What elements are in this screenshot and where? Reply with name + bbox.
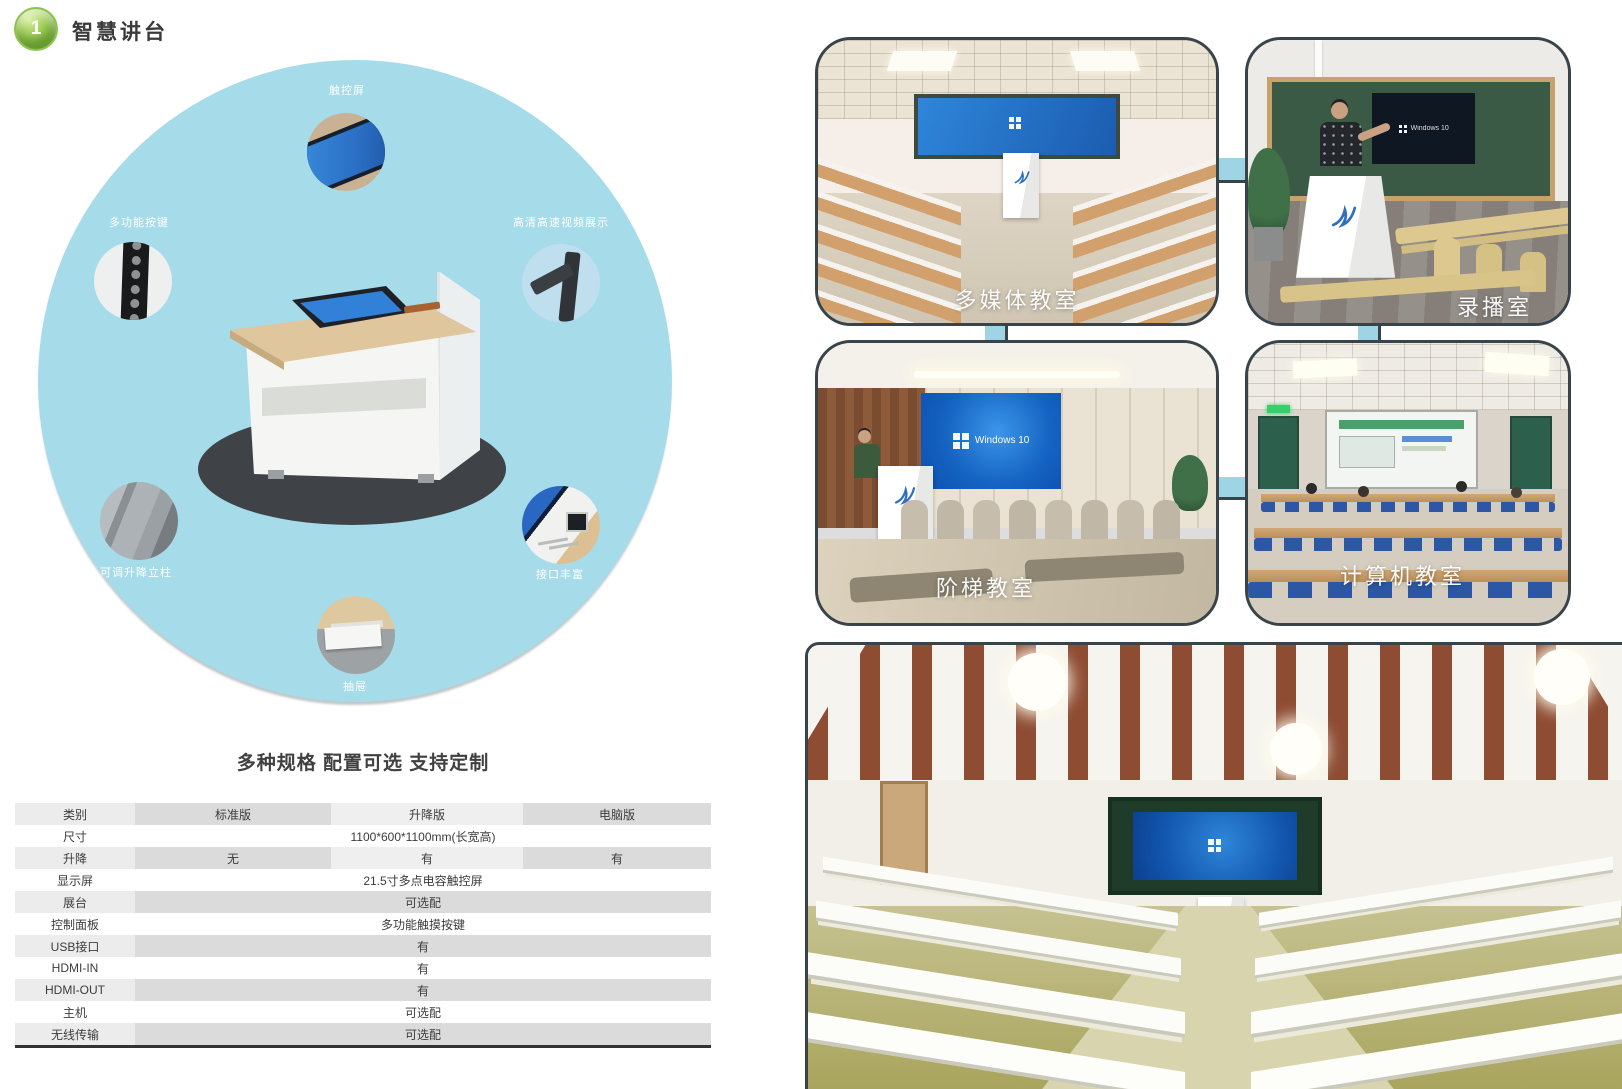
presenter-body — [854, 444, 880, 478]
brochure-page: 1 智慧讲台 触控屏 多功能按键 高清高速视频展示 可调升降立柱 接口丰富 — [0, 0, 1622, 1089]
door-left — [1258, 416, 1300, 494]
board — [1108, 797, 1322, 895]
spec-cell: 尺寸 — [15, 825, 135, 847]
spec-table: 类别 标准版 升降版 电脑版 尺寸 1100*600*1100mm(长宽高) 升… — [15, 803, 711, 1048]
spec-row: 展台 可选配 — [15, 891, 711, 913]
spec-cell: 类别 — [15, 803, 135, 825]
spec-cell: 多功能触摸按键 — [135, 913, 711, 935]
brand-logo-icon — [1011, 166, 1033, 188]
button-panel-icon — [120, 242, 149, 320]
photo-recording-room: Windows 10 录播室 — [1245, 37, 1571, 326]
board — [914, 94, 1121, 159]
column-photo — [100, 482, 178, 560]
spec-cell: 控制面板 — [15, 913, 135, 935]
photo-label: 计算机教室 — [1340, 559, 1465, 591]
section-number-badge: 1 — [14, 7, 58, 51]
spec-row: 尺寸 1100*600*1100mm(长宽高) — [15, 825, 711, 847]
photo-label: 阶梯教室 — [936, 571, 1036, 603]
photo-label: 多媒体教室 — [818, 283, 1216, 315]
product-lectern-image — [188, 212, 498, 512]
projection-screen: Windows 10 — [921, 393, 1060, 488]
spec-cell: 无线传输 — [15, 1023, 135, 1045]
chair-row — [882, 500, 1200, 542]
touch-screen-icon — [307, 113, 385, 191]
chairs — [1434, 238, 1460, 278]
windows-logo-icon — [1399, 125, 1407, 133]
students — [1306, 483, 1317, 494]
drawer-photo — [317, 596, 395, 674]
spec-cell: 21.5寸多点电容触控屏 — [135, 869, 711, 891]
spec-cell: 有 — [135, 935, 711, 957]
touch-screen-photo — [307, 113, 385, 191]
desk-row — [1261, 494, 1555, 512]
ceiling-light — [1292, 358, 1357, 378]
port-slots-icon — [538, 537, 568, 545]
board-screen — [1133, 812, 1298, 880]
spec-header-row: 类别 标准版 升降版 电脑版 — [15, 803, 711, 825]
exit-sign — [1267, 405, 1289, 413]
spec-cell: 标准版 — [135, 803, 331, 825]
buttons-photo — [94, 242, 172, 320]
spec-cell: 可选配 — [135, 1023, 711, 1045]
spec-row: HDMI-IN 有 — [15, 957, 711, 979]
spec-cell: 可选配 — [135, 1001, 711, 1023]
projection-screen — [1325, 410, 1479, 488]
spec-cell: HDMI-OUT — [15, 979, 135, 1001]
presenter-body — [1320, 122, 1362, 166]
spec-row: 主机 可选配 — [15, 1001, 711, 1023]
feature-label-buttons: 多功能按键 — [79, 214, 199, 230]
section-number: 1 — [31, 18, 42, 40]
photo-multimedia-classroom: 多媒体教室 — [815, 37, 1219, 326]
ceiling — [818, 343, 1216, 391]
windows-logo-icon — [1208, 839, 1221, 852]
feature-label-ports: 接口丰富 — [520, 566, 600, 582]
spec-cell: 可选配 — [135, 891, 711, 913]
plant-pot — [1254, 227, 1283, 261]
feature-label-hd-video: 高清高速视频展示 — [481, 214, 641, 230]
ceiling-wood-slats — [808, 645, 1622, 780]
feature-label-drawer: 抽屉 — [315, 678, 395, 694]
spec-cell: 升降 — [15, 847, 135, 869]
page-title: 智慧讲台 — [72, 16, 168, 46]
photo-label: 录播室 — [1457, 290, 1532, 322]
ceiling-light — [886, 51, 956, 71]
spec-cell: HDMI-IN — [15, 957, 135, 979]
board-screen — [918, 98, 1117, 155]
drawer-icon — [324, 624, 381, 650]
spec-row: 无线传输 可选配 — [15, 1023, 711, 1045]
spec-cell: 升降版 — [331, 803, 523, 825]
ports-photo — [522, 486, 600, 564]
photo-computer-classroom: 计算机教室 — [1245, 340, 1571, 626]
spec-cell: 电脑版 — [523, 803, 711, 825]
camera-photo — [522, 244, 600, 322]
spec-row: 升降 无 有 有 — [15, 847, 711, 869]
brand-logo-icon — [1326, 198, 1362, 234]
podium — [1003, 153, 1039, 218]
presenter-head — [858, 430, 871, 443]
windows-logo-icon — [1009, 117, 1021, 129]
spec-cell: 有 — [331, 847, 523, 869]
photo-showcase-classroom — [805, 642, 1622, 1089]
spec-cell: 展台 — [15, 891, 135, 913]
spec-row: 控制面板 多功能触摸按键 — [15, 913, 711, 935]
feature-label-column: 可调升降立柱 — [76, 564, 196, 580]
desk-row — [1254, 528, 1561, 551]
door-right — [1510, 416, 1552, 494]
spec-cell: 无 — [135, 847, 331, 869]
windows-logo-icon — [953, 433, 969, 449]
round-light — [1008, 653, 1066, 711]
spec-cell: 有 — [135, 979, 711, 1001]
spec-cell: 有 — [135, 957, 711, 979]
spec-row: 显示屏 21.5寸多点电容触控屏 — [15, 869, 711, 891]
camera-arm-icon — [558, 251, 580, 322]
spec-cell: USB接口 — [15, 935, 135, 957]
ceiling-light — [1070, 51, 1140, 71]
round-light — [1270, 723, 1322, 775]
spec-cell: 显示屏 — [15, 869, 135, 891]
podium — [1296, 176, 1395, 278]
feature-label-touch-screen: 触控屏 — [307, 82, 387, 98]
spec-row: USB接口 有 — [15, 935, 711, 957]
round-light — [1534, 649, 1590, 705]
tv-caption: Windows 10 — [1411, 125, 1449, 132]
cove-light — [914, 371, 1121, 378]
spec-cell: 1100*600*1100mm(长宽高) — [135, 825, 711, 847]
port-icon — [566, 512, 588, 532]
spec-cell: 主机 — [15, 1001, 135, 1023]
spec-heading: 多种规格 配置可选 支持定制 — [15, 748, 711, 775]
screen-caption: Windows 10 — [975, 435, 1029, 446]
photo-lecture-hall: Windows 10 阶梯教室 — [815, 340, 1219, 626]
spec-row: HDMI-OUT 有 — [15, 979, 711, 1001]
spec-cell: 有 — [523, 847, 711, 869]
camera-mount — [1315, 40, 1322, 80]
